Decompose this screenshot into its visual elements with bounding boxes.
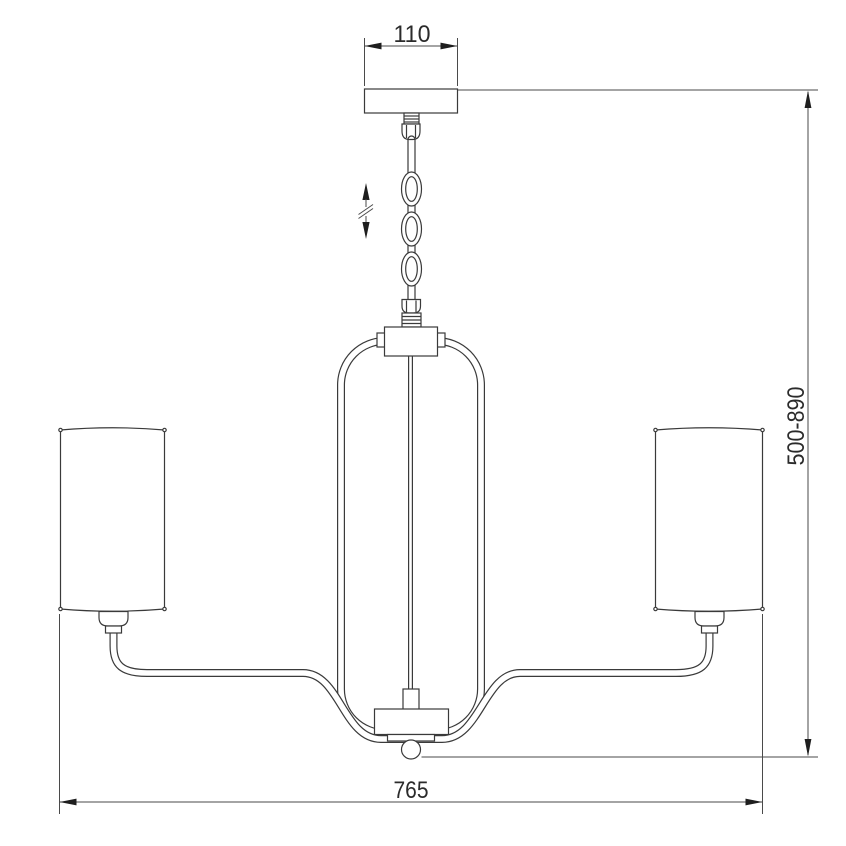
arrow-up-icon (805, 91, 812, 109)
ball-finial (402, 740, 421, 759)
shade-corner-pin (761, 428, 764, 431)
left-shade-holder-cup (99, 612, 128, 627)
center-bowl (375, 709, 449, 735)
chandelier-dimension-drawing: 110 500-890 765 (0, 0, 846, 846)
ceiling-canopy-assembly (365, 89, 458, 140)
chain-link-front (402, 172, 422, 206)
hub-right-tab (437, 333, 445, 347)
dimension-label-canopy-width: 110 (394, 21, 431, 48)
chain-link-front (402, 212, 422, 246)
shade-corner-pin (163, 428, 166, 431)
shade-corner-pin (163, 607, 166, 610)
shade-corner-pin (59, 428, 62, 431)
shade-corner-pin (59, 607, 62, 610)
height-adjustment-symbol (359, 183, 374, 239)
hub-body (385, 327, 438, 356)
chain-coupler (402, 124, 420, 140)
dimension-label-overall-height: 500-890 (783, 387, 810, 466)
arrow-left-icon (365, 43, 382, 50)
bottom-assembly (375, 689, 449, 759)
arrow-down-icon (805, 739, 812, 757)
suspension-chain (402, 136, 422, 327)
shade-corner-pin (761, 607, 764, 610)
right-shade-holder-cup (695, 612, 724, 627)
arrow-down-icon (362, 222, 369, 239)
left-shade-holder-neck (106, 626, 122, 633)
left-shade-assembly (59, 428, 166, 633)
ceiling-canopy (365, 89, 458, 113)
arrow-right-icon (441, 43, 458, 50)
right-cylindrical-shade (656, 428, 763, 612)
arrow-right-icon (746, 799, 763, 806)
hub-left-tab (377, 333, 385, 347)
dimension-canopy-width: 110 (365, 21, 458, 86)
dimension-label-overall-width: 765 (394, 777, 429, 804)
technical-drawing-page: 110 500-890 765 (0, 0, 846, 846)
right-shade-assembly (654, 428, 764, 633)
left-cylindrical-shade (61, 428, 165, 612)
rod-coupler (403, 689, 419, 710)
chain-socket-cup (402, 300, 421, 314)
right-shade-holder-neck (702, 626, 718, 633)
center-hub (377, 327, 445, 356)
arrow-left-icon (60, 799, 77, 806)
chain-link-front (402, 252, 422, 286)
shade-corner-pin (654, 607, 657, 610)
arrow-up-icon (362, 183, 369, 200)
shade-corner-pin (654, 428, 657, 431)
